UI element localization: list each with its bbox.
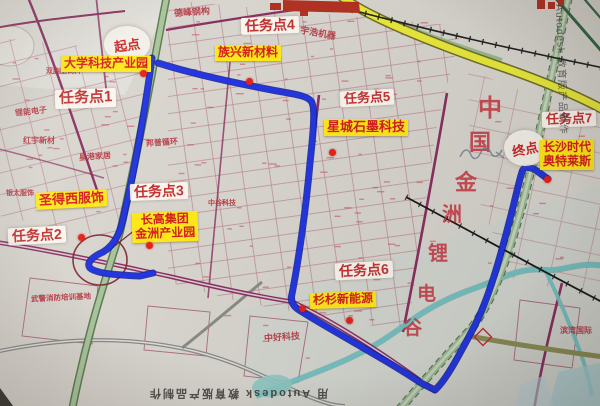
poi-marker-endpoint bbox=[544, 176, 551, 183]
poi-label-shanshan-new-energy: 杉杉新能源 bbox=[310, 291, 377, 309]
map-text-hongyu: 红宇新材 bbox=[23, 137, 55, 145]
district-char: 谷 bbox=[403, 317, 423, 339]
poi-label-xingcheng-graphite: 星城石墨科技 bbox=[324, 119, 408, 136]
task-point-2-label: 任务点2 bbox=[8, 225, 67, 245]
poi-marker-xingcheng bbox=[329, 149, 336, 156]
start-point-label: 起点 bbox=[113, 33, 141, 55]
task-point-6-label: 任务点6 bbox=[335, 260, 394, 280]
map-text-yintai: 银太服饰 bbox=[6, 190, 34, 197]
poi-marker-route bbox=[299, 305, 306, 312]
task-point-3-label: 任务点3 bbox=[130, 182, 188, 201]
poi-marker-changgao bbox=[146, 242, 153, 249]
map-text-binwan: 滨湾国际 bbox=[560, 327, 592, 335]
poi-marker-shengdexi bbox=[78, 234, 85, 241]
task-point-4-label: 任务点4 bbox=[241, 16, 299, 35]
poi-label-line2: 金洲产业园 bbox=[135, 226, 195, 242]
end-point-label: 终点 bbox=[510, 136, 539, 160]
district-char: 锂 bbox=[428, 241, 448, 265]
poi-marker-zuxing bbox=[246, 78, 253, 85]
district-char: 洲 bbox=[442, 203, 462, 226]
poi-marker-shanshan bbox=[346, 317, 353, 324]
district-char: 电 bbox=[417, 282, 436, 305]
poi-label-changgao-group-park: 长高集团 金洲产业园 bbox=[132, 211, 199, 243]
map-text-zhonggu: 中谷科技 bbox=[208, 200, 236, 207]
district-char: 金 bbox=[454, 170, 478, 195]
poi-label-university-science-park: 大学科技产业园 bbox=[61, 56, 151, 72]
district-char: 中 bbox=[478, 95, 502, 122]
poi-marker-university-park bbox=[140, 70, 147, 77]
map-screenshot: 中 国 金 洲 锂 电 谷 起点 终点 任务点1 任务点 bbox=[0, 0, 600, 406]
poi-label-zuxing-new-materials: 族兴新材料 bbox=[215, 45, 281, 61]
district-char: 国 bbox=[469, 130, 491, 155]
task-point-1-label: 任务点1 bbox=[55, 88, 117, 109]
task-point-5-label: 任务点5 bbox=[340, 89, 395, 108]
watermark-bottom: 用 Autodesk 教育版产品制作 bbox=[148, 386, 328, 402]
